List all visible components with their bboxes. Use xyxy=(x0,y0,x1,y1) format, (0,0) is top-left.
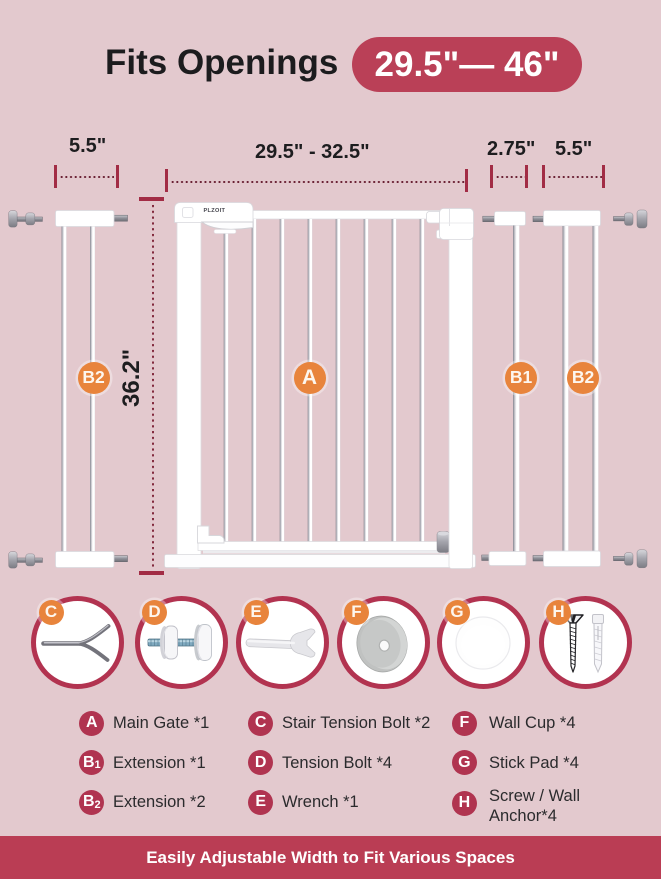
svg-text:PLZOIT: PLZOIT xyxy=(204,208,226,214)
